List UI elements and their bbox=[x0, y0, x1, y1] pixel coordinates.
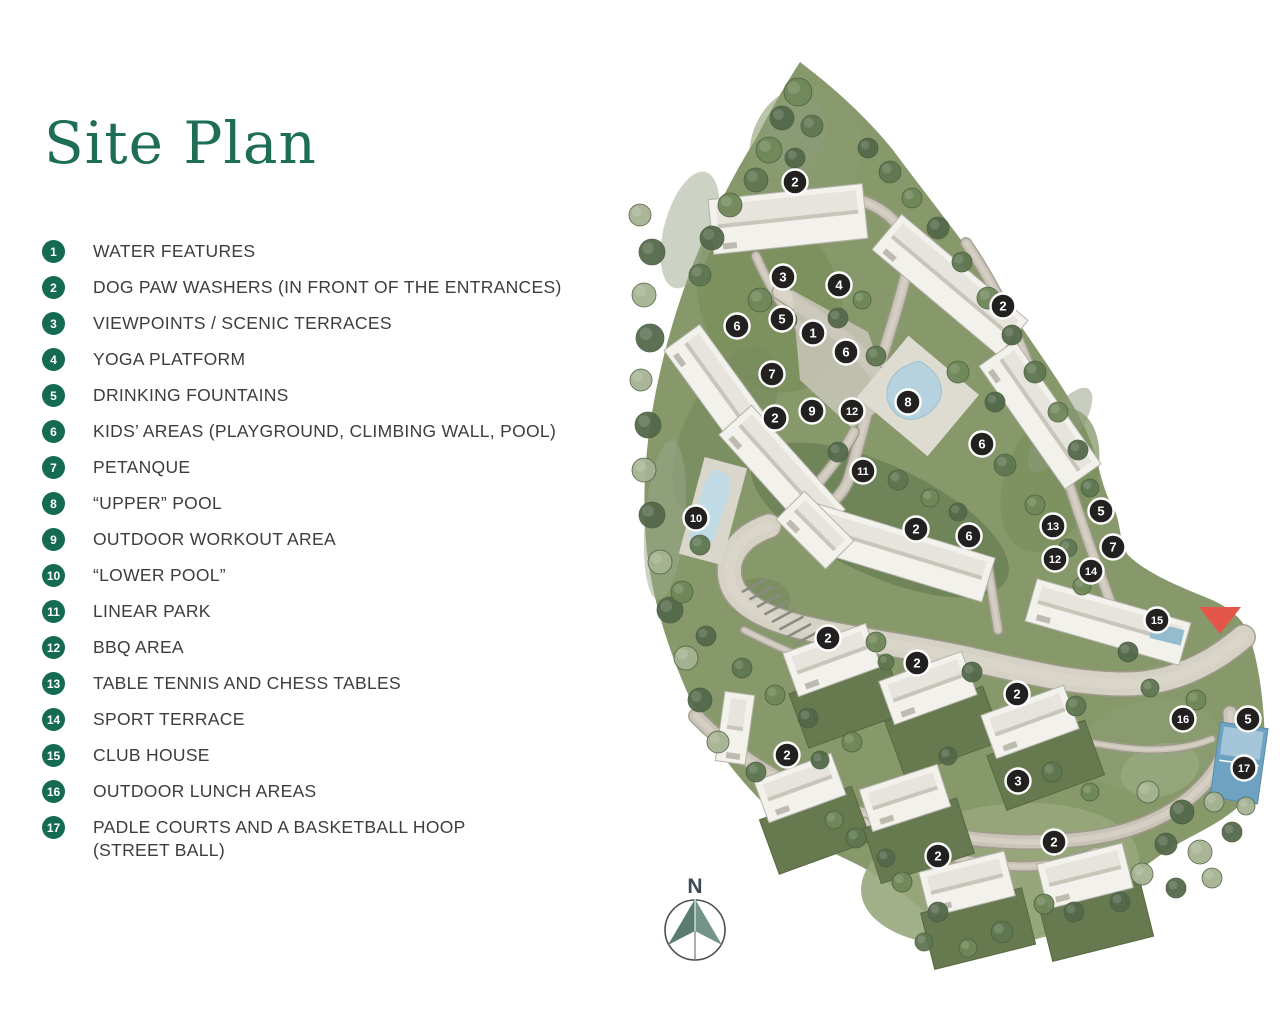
tree-highlight bbox=[699, 629, 708, 638]
marker-number: 7 bbox=[1109, 540, 1116, 555]
marker-number: 10 bbox=[690, 513, 702, 525]
legend-label-3: VIEWPOINTS / SCENIC TERRACES bbox=[93, 312, 392, 335]
tree-highlight bbox=[735, 661, 744, 670]
tree-highlight bbox=[642, 505, 654, 517]
tree-highlight bbox=[931, 905, 940, 914]
tree-highlight bbox=[869, 635, 878, 644]
tree-highlight bbox=[1169, 881, 1178, 890]
map-marker-2: 2 bbox=[783, 170, 808, 195]
tree-highlight bbox=[813, 753, 821, 761]
tree-highlight bbox=[1071, 443, 1080, 452]
tree-highlight bbox=[1113, 895, 1122, 904]
legend-item-13: 13TABLE TENNIS AND CHESS TABLES bbox=[42, 672, 642, 695]
legend-label-16: OUTDOOR LUNCH AREAS bbox=[93, 780, 317, 803]
tree-highlight bbox=[749, 765, 758, 774]
map-marker-5: 5 bbox=[1089, 499, 1114, 524]
page-title: Site Plan bbox=[44, 112, 644, 176]
legend-item-9: 9OUTDOOR WORKOUT AREA bbox=[42, 528, 642, 551]
tree-highlight bbox=[1083, 785, 1091, 793]
tree-highlight bbox=[1027, 364, 1037, 374]
tree-highlight bbox=[997, 457, 1007, 467]
tree-highlight bbox=[788, 82, 801, 95]
legend-label-6: KIDS’ AREAS (PLAYGROUND, CLIMBING WALL, … bbox=[93, 420, 556, 443]
marker-number: 7 bbox=[768, 367, 775, 382]
tree-highlight bbox=[1037, 897, 1046, 906]
map-marker-2: 2 bbox=[991, 294, 1016, 319]
tree-highlight bbox=[855, 293, 863, 301]
legend-label-11: LINEAR PARK bbox=[93, 600, 211, 623]
marker-number: 6 bbox=[978, 437, 985, 452]
legend-label-10: “LOWER POOL” bbox=[93, 564, 226, 587]
tree-highlight bbox=[879, 851, 887, 859]
map-marker-14: 14 bbox=[1079, 559, 1104, 584]
legend-label-13: TABLE TENNIS AND CHESS TABLES bbox=[93, 672, 401, 695]
map-marker-10: 10 bbox=[684, 506, 709, 531]
legend-item-4: 4YOGA PLATFORM bbox=[42, 348, 642, 371]
tree-highlight bbox=[869, 349, 878, 358]
tree-highlight bbox=[1083, 481, 1091, 489]
legend-badge-5: 5 bbox=[42, 384, 65, 407]
marker-number: 2 bbox=[913, 656, 920, 671]
legend-item-5: 5DRINKING FOUNTAINS bbox=[42, 384, 642, 407]
map-marker-5: 5 bbox=[770, 307, 795, 332]
tree-highlight bbox=[1140, 784, 1150, 794]
tree-highlight bbox=[1143, 681, 1151, 689]
tree-highlight bbox=[923, 491, 931, 499]
map-marker-2: 2 bbox=[775, 743, 800, 768]
tree-highlight bbox=[831, 311, 840, 320]
map-marker-2: 2 bbox=[763, 406, 788, 431]
map-marker-15: 15 bbox=[1145, 608, 1170, 633]
legend-badge-6: 6 bbox=[42, 420, 65, 443]
marker-number: 2 bbox=[783, 748, 790, 763]
legend-badge-7: 7 bbox=[42, 456, 65, 479]
tree-highlight bbox=[751, 291, 762, 302]
marker-number: 17 bbox=[1238, 763, 1250, 775]
tree-highlight bbox=[703, 229, 714, 240]
map-marker-2: 2 bbox=[816, 626, 841, 651]
map-marker-2: 2 bbox=[1005, 682, 1030, 707]
legend-item-16: 16OUTDOOR LUNCH AREAS bbox=[42, 780, 642, 803]
marker-number: 3 bbox=[779, 270, 786, 285]
marker-number: 6 bbox=[965, 529, 972, 544]
marker-number: 15 bbox=[1151, 615, 1163, 627]
tree-highlight bbox=[849, 831, 858, 840]
tree-highlight bbox=[1045, 765, 1054, 774]
tree-highlight bbox=[988, 395, 997, 404]
marker-number: 5 bbox=[1097, 504, 1104, 519]
tree-highlight bbox=[1005, 328, 1014, 337]
map-marker-17: 17 bbox=[1232, 756, 1257, 781]
map-marker-7: 7 bbox=[1101, 535, 1126, 560]
marker-number: 2 bbox=[824, 631, 831, 646]
legend-item-12: 12BBQ AREA bbox=[42, 636, 642, 659]
legend-label-12: BBQ AREA bbox=[93, 636, 184, 659]
legend-badge-12: 12 bbox=[42, 636, 65, 659]
tree-highlight bbox=[1028, 498, 1037, 507]
tree-highlight bbox=[691, 691, 702, 702]
tree-highlight bbox=[801, 711, 810, 720]
legend-label-9: OUTDOOR WORKOUT AREA bbox=[93, 528, 336, 551]
legend-badge-17: 17 bbox=[42, 816, 65, 839]
tree-highlight bbox=[845, 735, 854, 744]
tree-highlight bbox=[955, 255, 964, 264]
tree-highlight bbox=[1158, 836, 1168, 846]
legend-label-7: PETANQUE bbox=[93, 456, 190, 479]
tree-highlight bbox=[1134, 866, 1144, 876]
tree-highlight bbox=[660, 600, 672, 612]
tree-highlight bbox=[1207, 795, 1216, 804]
tree-highlight bbox=[674, 584, 684, 594]
tree-highlight bbox=[1189, 693, 1198, 702]
tree-highlight bbox=[1067, 905, 1076, 914]
marker-number: 6 bbox=[842, 345, 849, 360]
tree-highlight bbox=[1239, 799, 1247, 807]
tree-highlight bbox=[773, 109, 784, 120]
tree-highlight bbox=[961, 941, 969, 949]
compass-rose: N bbox=[665, 875, 725, 960]
tree-highlight bbox=[930, 220, 940, 230]
tree-highlight bbox=[1173, 803, 1184, 814]
map-marker-16: 16 bbox=[1171, 707, 1196, 732]
marker-number: 2 bbox=[912, 522, 919, 537]
legend-label-1: WATER FEATURES bbox=[93, 240, 255, 263]
map-marker-5: 5 bbox=[1236, 707, 1261, 732]
tree-highlight bbox=[721, 196, 732, 207]
tree-highlight bbox=[980, 290, 990, 300]
map-marker-2: 2 bbox=[1042, 830, 1067, 855]
legend-item-17: 17PADLE COURTS AND A BASKETBALL HOOP(STR… bbox=[42, 816, 642, 862]
tree-highlight bbox=[861, 141, 870, 150]
map-marker-12: 12 bbox=[840, 399, 865, 424]
legend-badge-2: 2 bbox=[42, 276, 65, 299]
marker-number: 5 bbox=[778, 312, 785, 327]
tree-highlight bbox=[1225, 825, 1234, 834]
tree-highlight bbox=[1121, 645, 1130, 654]
legend-item-8: 8“UPPER” POOL bbox=[42, 492, 642, 515]
map-marker-12: 12 bbox=[1043, 547, 1068, 572]
tree-highlight bbox=[768, 688, 777, 697]
map-marker-2: 2 bbox=[905, 651, 930, 676]
marker-number: 13 bbox=[1047, 521, 1059, 533]
legend-label-14: SPORT TERRACE bbox=[93, 708, 245, 731]
legend-item-2: 2DOG PAW WASHERS (IN FRONT OF THE ENTRAN… bbox=[42, 276, 642, 299]
tree-highlight bbox=[677, 649, 688, 660]
tree-highlight bbox=[882, 164, 892, 174]
legend-item-14: 14SPORT TERRACE bbox=[42, 708, 642, 731]
map-marker-6: 6 bbox=[725, 314, 750, 339]
legend-label-15: CLUB HOUSE bbox=[93, 744, 210, 767]
marker-number: 5 bbox=[1244, 712, 1251, 727]
compass-north-label: N bbox=[687, 875, 702, 898]
tree-highlight bbox=[917, 935, 925, 943]
legend-list: 1WATER FEATURES2DOG PAW WASHERS (IN FRON… bbox=[42, 240, 642, 875]
marker-number: 14 bbox=[1085, 566, 1098, 578]
legend-badge-16: 16 bbox=[42, 780, 65, 803]
legend-label-17: PADLE COURTS AND A BASKETBALL HOOP(STREE… bbox=[93, 816, 466, 862]
marker-number: 2 bbox=[999, 299, 1006, 314]
map-marker-4: 4 bbox=[827, 273, 852, 298]
tree-highlight bbox=[1051, 405, 1060, 414]
tree-highlight bbox=[951, 505, 959, 513]
marker-number: 12 bbox=[1049, 554, 1061, 566]
legend-item-11: 11LINEAR PARK bbox=[42, 600, 642, 623]
legend-label-4: YOGA PLATFORM bbox=[93, 348, 245, 371]
legend-badge-14: 14 bbox=[42, 708, 65, 731]
marker-number: 2 bbox=[791, 175, 798, 190]
map-marker-2: 2 bbox=[904, 517, 929, 542]
legend-badge-13: 13 bbox=[42, 672, 65, 695]
map-marker-2: 2 bbox=[926, 844, 951, 869]
marker-number: 2 bbox=[934, 849, 941, 864]
marker-number: 6 bbox=[733, 319, 740, 334]
tree-highlight bbox=[651, 553, 662, 564]
map-marker-6: 6 bbox=[957, 524, 982, 549]
legend-item-7: 7PETANQUE bbox=[42, 456, 642, 479]
legend-badge-4: 4 bbox=[42, 348, 65, 371]
legend-badge-8: 8 bbox=[42, 492, 65, 515]
tree-highlight bbox=[994, 924, 1004, 934]
tree-highlight bbox=[831, 445, 840, 454]
tree-highlight bbox=[692, 267, 702, 277]
legend-item-15: 15CLUB HOUSE bbox=[42, 744, 642, 767]
map-marker-6: 6 bbox=[970, 432, 995, 457]
tree-highlight bbox=[1205, 871, 1214, 880]
legend-label-8: “UPPER” POOL bbox=[93, 492, 222, 515]
legend-panel: Site Plan 1WATER FEATURES2DOG PAW WASHER… bbox=[44, 112, 644, 222]
marker-number: 2 bbox=[1013, 687, 1020, 702]
tree-highlight bbox=[693, 538, 702, 547]
tree-highlight bbox=[788, 151, 797, 160]
legend-badge-11: 11 bbox=[42, 600, 65, 623]
tree-highlight bbox=[642, 242, 654, 254]
legend-item-1: 1WATER FEATURES bbox=[42, 240, 642, 263]
marker-number: 12 bbox=[846, 406, 858, 418]
marker-number: 16 bbox=[1177, 714, 1189, 726]
map-marker-8: 8 bbox=[896, 390, 921, 415]
legend-badge-3: 3 bbox=[42, 312, 65, 335]
map-marker-1: 1 bbox=[801, 321, 826, 346]
map-marker-3: 3 bbox=[771, 265, 796, 290]
marker-number: 8 bbox=[904, 395, 911, 410]
tree-highlight bbox=[905, 191, 914, 200]
marker-number: 3 bbox=[1014, 774, 1021, 789]
marker-number: 4 bbox=[835, 278, 843, 293]
legend-badge-9: 9 bbox=[42, 528, 65, 551]
tree-highlight bbox=[965, 665, 974, 674]
tree-highlight bbox=[1191, 843, 1202, 854]
legend-label-5: DRINKING FOUNTAINS bbox=[93, 384, 289, 407]
legend-item-6: 6KIDS’ AREAS (PLAYGROUND, CLIMBING WALL,… bbox=[42, 420, 642, 443]
marker-number: 2 bbox=[1050, 835, 1057, 850]
map-marker-13: 13 bbox=[1041, 514, 1066, 539]
tree-highlight bbox=[880, 656, 887, 663]
marker-number: 2 bbox=[771, 411, 778, 426]
marker-number: 9 bbox=[808, 404, 815, 419]
tree-highlight bbox=[747, 171, 758, 182]
map-marker-11: 11 bbox=[851, 459, 876, 484]
map-marker-7: 7 bbox=[760, 362, 785, 387]
map-marker-9: 9 bbox=[800, 399, 825, 424]
tree-highlight bbox=[710, 734, 720, 744]
legend-badge-15: 15 bbox=[42, 744, 65, 767]
tree-highlight bbox=[891, 473, 900, 482]
tree-highlight bbox=[759, 140, 771, 152]
tree-highlight bbox=[1069, 699, 1078, 708]
legend-badge-1: 1 bbox=[42, 240, 65, 263]
legend-item-10: 10“LOWER POOL” bbox=[42, 564, 642, 587]
tree-highlight bbox=[950, 364, 960, 374]
map-marker-3: 3 bbox=[1006, 769, 1031, 794]
legend-label-2: DOG PAW WASHERS (IN FRONT OF THE ENTRANC… bbox=[93, 276, 562, 299]
legend-badge-10: 10 bbox=[42, 564, 65, 587]
tree-highlight bbox=[895, 875, 904, 884]
map-marker-6: 6 bbox=[834, 340, 859, 365]
tree-highlight bbox=[827, 813, 835, 821]
marker-number: 11 bbox=[857, 466, 869, 478]
tree-highlight bbox=[941, 749, 949, 757]
tree-highlight bbox=[804, 118, 814, 128]
legend-item-3: 3VIEWPOINTS / SCENIC TERRACES bbox=[42, 312, 642, 335]
marker-number: 1 bbox=[809, 326, 816, 341]
